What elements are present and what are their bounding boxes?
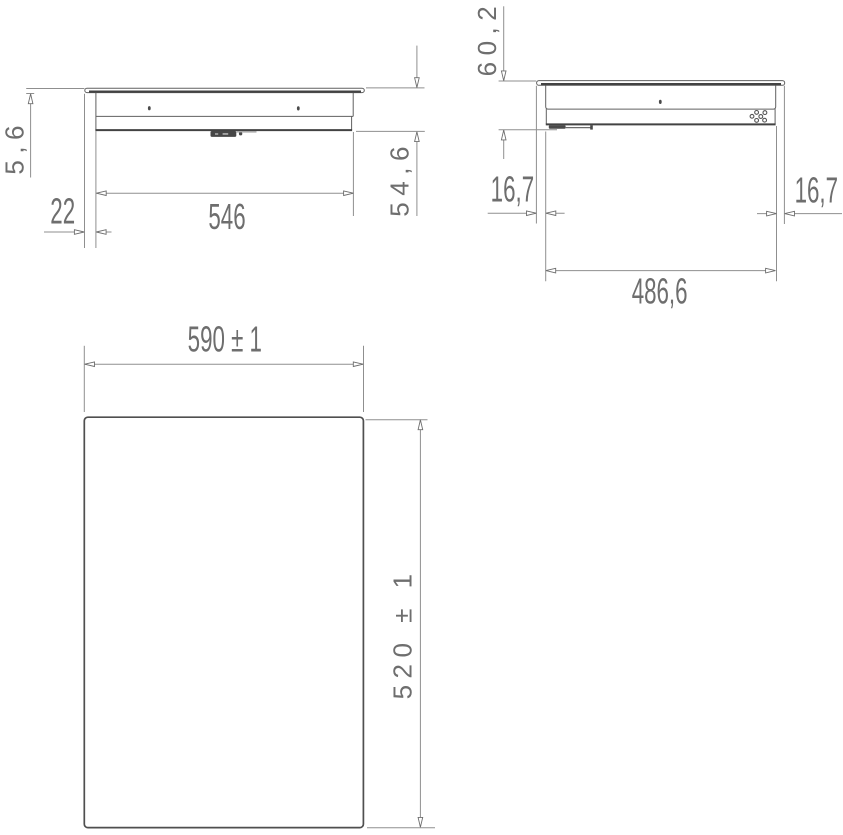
svg-text:520 ± 1: 520 ± 1 (388, 567, 418, 699)
svg-text:60,2: 60,2 (472, 0, 502, 76)
svg-text:486,6: 486,6 (632, 272, 688, 312)
svg-text:16,7: 16,7 (491, 170, 534, 210)
svg-text:590 ± 1: 590 ± 1 (188, 320, 262, 360)
svg-text:16,7: 16,7 (795, 171, 838, 211)
svg-text:22: 22 (50, 192, 75, 232)
svg-text:54,6: 54,6 (384, 140, 414, 217)
svg-text:546: 546 (208, 198, 245, 238)
svg-text:5,6: 5,6 (0, 119, 29, 175)
